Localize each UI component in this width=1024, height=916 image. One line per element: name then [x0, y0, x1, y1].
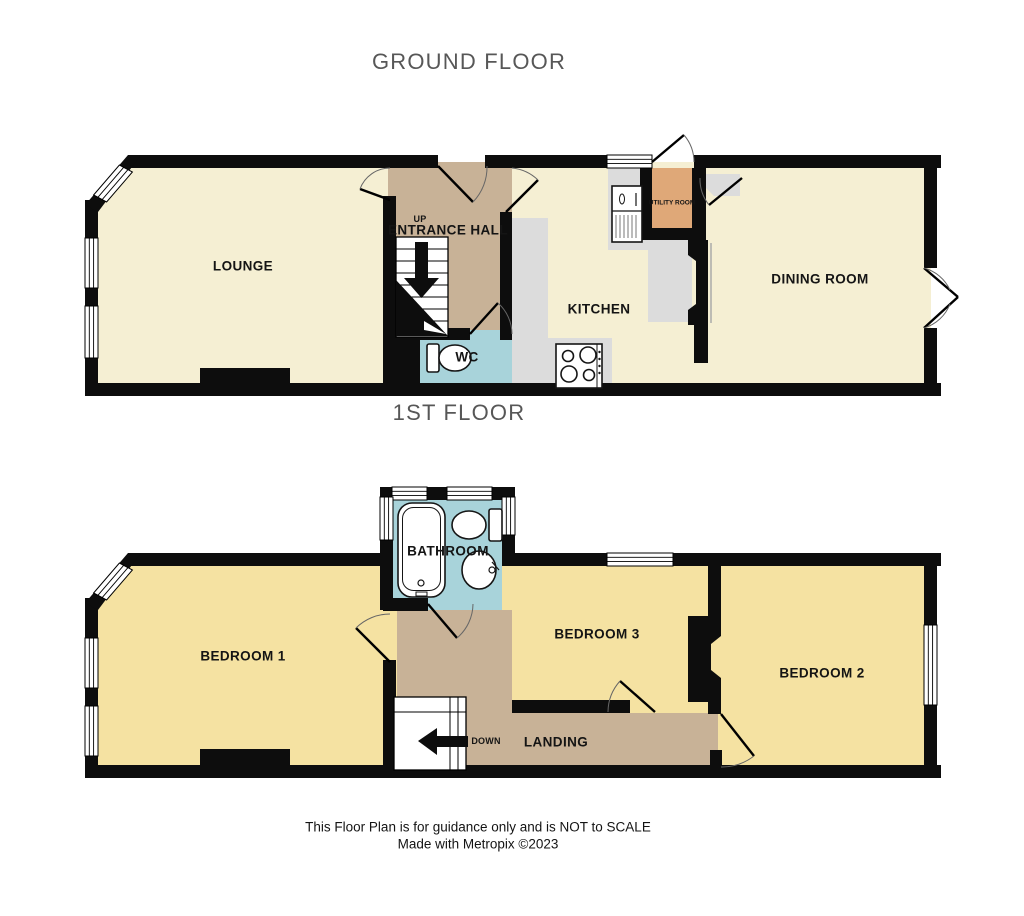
bedroom3-window: [607, 553, 673, 566]
fridge-icon: [612, 186, 642, 242]
bathroom-window: [447, 487, 492, 500]
room-label-bedroom2: BEDROOM 2: [779, 666, 864, 681]
room-label-bedroom3: BEDROOM 3: [554, 627, 639, 642]
bedroom2-window: [924, 625, 937, 705]
room-label-landing: LANDING: [524, 735, 588, 750]
bathroom-window: [380, 497, 393, 540]
footer-disclaimer: This Floor Plan is for guidance only and…: [305, 820, 651, 835]
bedroom1-window: [85, 706, 98, 756]
first-floor-title: 1ST FLOOR: [393, 400, 526, 426]
first-floor-plan: [85, 487, 941, 778]
bedroom2-chimney-breast: [688, 616, 708, 702]
stairs-up: [396, 237, 448, 337]
room-label-kitchen: KITCHEN: [568, 302, 631, 317]
bedroom1-window: [85, 638, 98, 688]
ground-floor-title: GROUND FLOOR: [372, 49, 566, 75]
room-label-wc: WC: [455, 350, 478, 365]
lounge-chimney-breast: [200, 368, 290, 384]
room-label-utility: UTILITY ROOM: [649, 200, 695, 207]
floorplan-page: GROUND FLOOR 1ST FLOOR LOUNGE UP ENTRANC…: [0, 0, 1024, 916]
floorplan-canvas: [0, 0, 1024, 916]
stairs-down-label: DOWN: [471, 736, 500, 746]
room-label-lounge: LOUNGE: [213, 259, 273, 274]
footer-credit: Made with Metropix ©2023: [398, 837, 559, 852]
toilet-icon: [452, 509, 502, 541]
lounge-window: [85, 238, 98, 288]
lounge-window: [85, 306, 98, 358]
room-label-entrance-hall: ENTRANCE HALL: [388, 223, 508, 238]
room-label-bedroom1: BEDROOM 1: [200, 649, 285, 664]
stairs-down: [394, 697, 468, 770]
hob-icon: [556, 344, 602, 388]
bathroom-window: [392, 487, 427, 500]
back-door: [652, 135, 694, 162]
room-label-dining: DINING ROOM: [771, 272, 868, 287]
room-label-bathroom: BATHROOM: [407, 544, 489, 559]
kitchen-window: [607, 155, 652, 168]
bedroom1-chimney-breast: [200, 749, 290, 765]
bathroom-window: [502, 497, 515, 535]
